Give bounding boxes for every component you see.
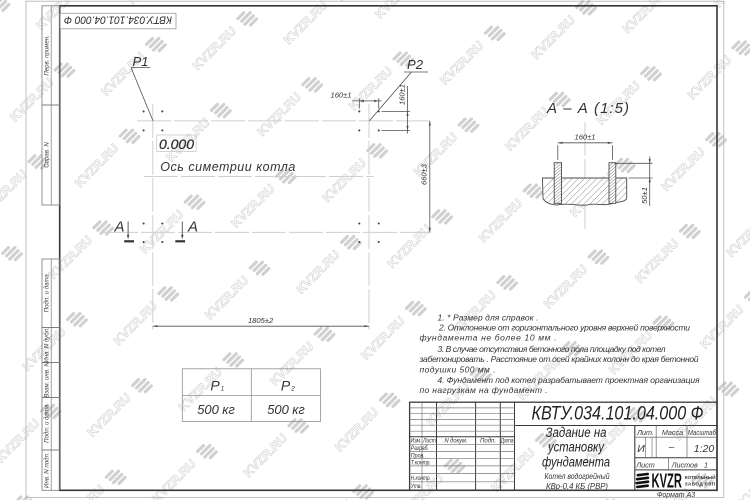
- svg-text:Р: Р: [281, 378, 291, 394]
- svg-text:И: И: [637, 443, 645, 455]
- svg-text:1: 1: [221, 385, 225, 392]
- svg-text:КВТУ.034.101.04.000 Ф: КВТУ.034.101.04.000 Ф: [64, 13, 172, 25]
- svg-text:А: А: [113, 218, 124, 235]
- svg-text:Т.контр.: Т.контр.: [411, 460, 431, 467]
- svg-text:Разраб.: Разраб.: [411, 445, 429, 452]
- svg-text:2. Отклонение от горизонтально: 2. Отклонение от горизонтального уровня …: [438, 323, 690, 333]
- svg-text:Подп. и дата: Подп. и дата: [44, 274, 51, 313]
- svg-text:50±1: 50±1: [640, 187, 649, 204]
- svg-text:3. В случае отсутствия бетонно: 3. В случае отсутствия бетонного пола пл…: [438, 344, 666, 354]
- svg-text:Задание на: Задание на: [546, 425, 607, 440]
- svg-text:забетонировать . Расстояние от: забетонировать . Расстояние от осей край…: [419, 354, 699, 364]
- svg-text:КВТУ.034.101.04.000 Ф: КВТУ.034.101.04.000 Ф: [532, 402, 704, 424]
- svg-text:установку: установку: [547, 440, 605, 455]
- svg-text:160±1: 160±1: [398, 84, 407, 105]
- svg-text:Лист: Лист: [635, 461, 655, 470]
- svg-text:Ось симетрии котла: Ось симетрии котла: [160, 160, 295, 174]
- svg-text:160±1: 160±1: [330, 91, 351, 100]
- svg-text:Котел водогрейный: Котел водогрейный: [545, 472, 610, 481]
- svg-text:Подп.: Подп.: [480, 438, 496, 445]
- svg-text:–: –: [668, 442, 675, 453]
- svg-text:Дата: Дата: [500, 438, 514, 445]
- svg-text:1: 1: [704, 461, 708, 470]
- svg-text:160±1: 160±1: [574, 133, 595, 142]
- svg-text:Р: Р: [210, 378, 220, 394]
- svg-text:Подп. и дата: Подп. и дата: [44, 404, 51, 443]
- svg-text:фундамента: фундамента: [542, 454, 610, 469]
- svg-text:Пров.: Пров.: [411, 452, 425, 459]
- svg-text:по нагрузкам на фундамент .: по нагрузкам на фундамент .: [420, 385, 548, 395]
- svg-text:500 кг: 500 кг: [267, 402, 305, 417]
- svg-text:подушки 500 мм .: подушки 500 мм .: [420, 365, 496, 375]
- svg-text:1805±2: 1805±2: [248, 316, 274, 325]
- svg-text:Листов: Листов: [671, 461, 698, 470]
- svg-text:4. Фундамент под котел разраба: 4. Фундамент под котел разрабатывает про…: [438, 375, 700, 385]
- svg-text:2: 2: [290, 385, 295, 392]
- svg-text:660±3: 660±3: [420, 163, 429, 185]
- svg-text:Справ. N: Справ. N: [44, 142, 51, 168]
- svg-text:P2: P2: [407, 57, 424, 72]
- svg-text:А: А: [187, 218, 198, 235]
- svg-text:КВр-0,4 КБ (РВР): КВр-0,4 КБ (РВР): [546, 482, 608, 491]
- svg-text:Взам. инв. N: Взам. инв. N: [44, 362, 51, 398]
- svg-text:А – А (1:5): А – А (1:5): [546, 100, 629, 117]
- svg-text:Инв. N подл.: Инв. N подл.: [44, 452, 51, 488]
- svg-text:1. * Размер для справок .: 1. * Размер для справок .: [438, 312, 539, 322]
- svg-text:KVZR: KVZR: [652, 471, 683, 493]
- svg-text:Н.контр.: Н.контр.: [411, 475, 431, 482]
- svg-text:Формат А3: Формат А3: [657, 492, 695, 499]
- svg-text:Утв.: Утв.: [410, 483, 422, 490]
- svg-text:Лист: Лист: [422, 438, 436, 445]
- svg-text:0.000: 0.000: [159, 136, 194, 152]
- svg-text:Лит.: Лит.: [636, 428, 654, 437]
- svg-text:Масса: Масса: [662, 428, 683, 437]
- svg-text:1:20: 1:20: [694, 443, 715, 455]
- svg-text:Изм.: Изм.: [411, 438, 422, 445]
- svg-text:Масштаб: Масштаб: [688, 428, 717, 437]
- svg-text:ЗАВОД РЭП: ЗАВОД РЭП: [685, 481, 716, 487]
- svg-text:Перв. примен.: Перв. примен.: [44, 35, 51, 76]
- svg-text:N докум.: N докум.: [445, 438, 468, 445]
- svg-text:фундамента не более 10 мм .: фундамента не более 10 мм .: [420, 333, 557, 343]
- svg-text:Инв. N дубл.: Инв. N дубл.: [44, 327, 51, 362]
- svg-text:500 кг: 500 кг: [197, 402, 235, 417]
- svg-text:P1: P1: [133, 54, 149, 69]
